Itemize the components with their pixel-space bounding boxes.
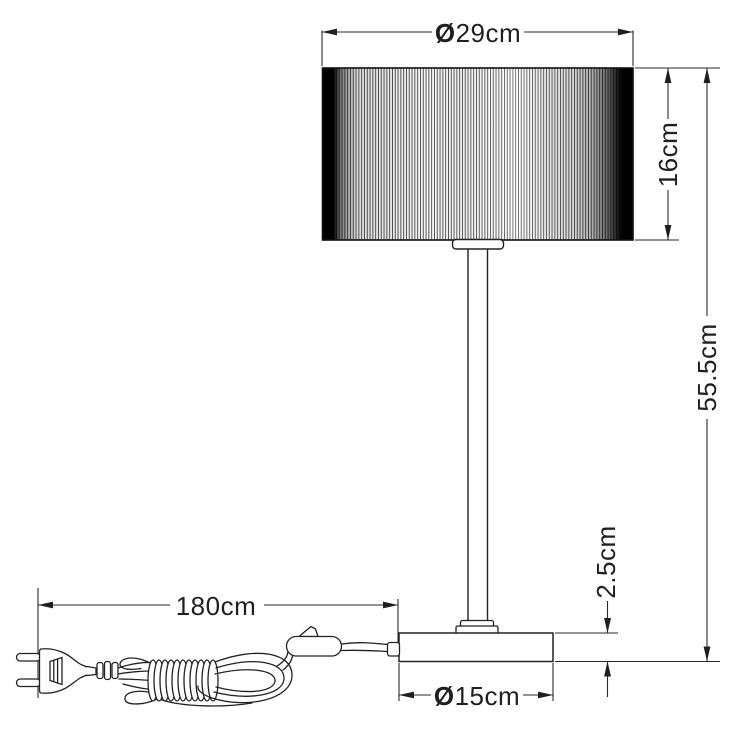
total-height-label: 55.5cm [692,323,722,411]
coiled-cord [118,648,293,706]
strain-relief-rib-1 [97,663,103,679]
switch-rocker [299,627,318,637]
lamp-base [399,633,553,662]
inline-switch [287,627,342,657]
strain-relief-rib-3 [112,663,118,679]
arrow-up [604,662,611,677]
arrow-up [665,68,672,83]
arrow-down [704,647,711,662]
cord-length-label: 180cm [176,591,257,621]
arrow-left [399,692,414,699]
arrow-left [322,29,337,36]
cord-loop-right-inner [215,670,275,692]
dim-base-height: 2.5cm [555,525,621,697]
cord-to-base-2 [342,650,389,651]
shade-height-label: 16cm [653,122,683,188]
plug-pin-top [17,654,41,662]
shade-edge-shading [323,68,634,240]
arrow-right [538,692,553,699]
power-plug [17,649,119,693]
switch-body [287,637,342,657]
lamp-shade [323,68,634,240]
base-height-label: 2.5cm [591,525,621,598]
arrow-down [604,618,611,633]
cord-to-base-1 [342,643,389,645]
coil-wrap-rings [148,660,218,701]
base-cord-connector [388,643,400,657]
shade-diameter-label: Ø29cm [435,18,521,48]
lamp-stem [468,246,488,624]
arrow-left [38,602,53,609]
stem-flange [456,621,498,634]
plug-body [40,649,89,693]
cord-strand-2 [118,671,152,674]
dim-cord-length: 180cm [38,591,398,621]
cord-assembly [17,627,400,706]
plug-neck [87,667,96,676]
dim-shade-diameter: Ø29cm [322,18,633,66]
plug-pin-bottom [17,679,41,687]
base-diameter-label: Ø15cm [434,681,520,711]
dim-base-diameter: Ø15cm [399,663,553,711]
cord-strand-1 [118,662,152,668]
shade-stem-connector [453,240,504,250]
arrow-down [665,225,672,240]
lamp-body [323,68,634,662]
technical-drawing-canvas: Ø29cm 16cm 55.5cm 2.5c [0,0,739,731]
arrow-right [618,29,633,36]
cord-strand-3 [119,679,152,681]
lamp-dimension-drawing: Ø29cm 16cm 55.5cm 2.5c [0,0,739,731]
arrow-right [383,602,398,609]
arrow-up [704,68,711,83]
strain-relief-rib-2 [105,662,111,680]
